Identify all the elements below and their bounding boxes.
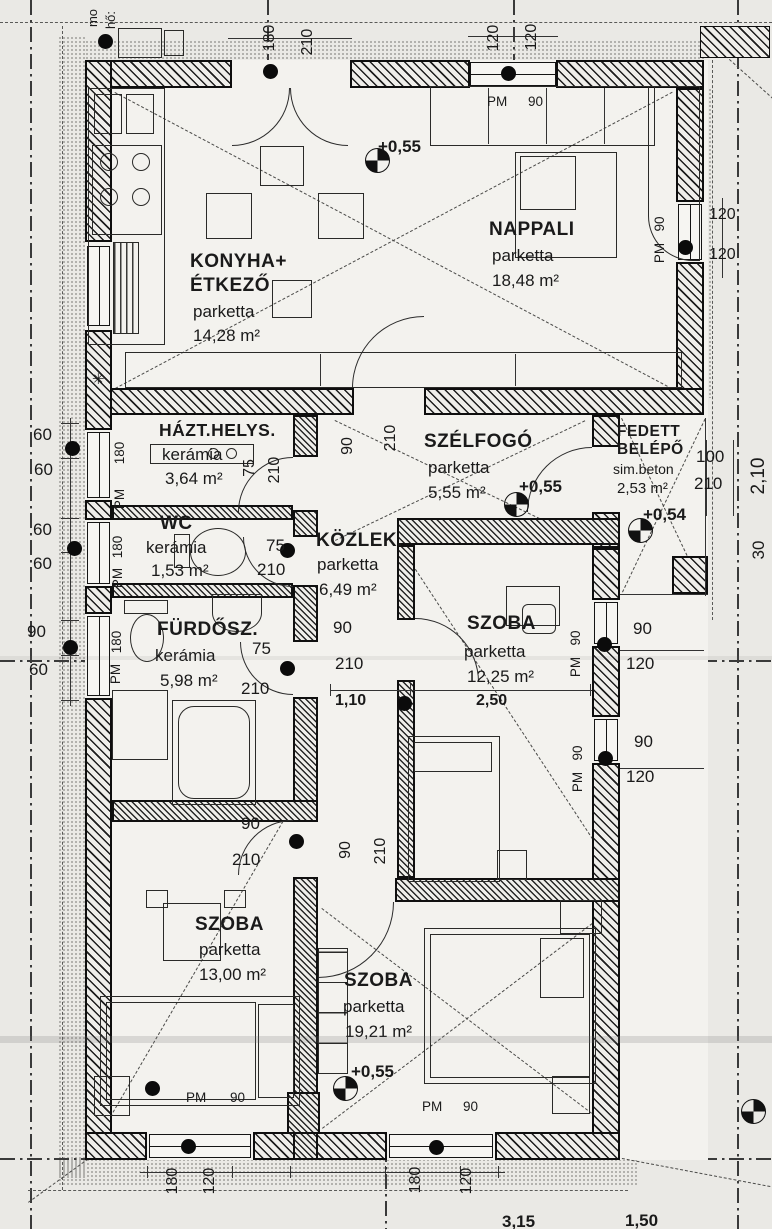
dimension-label: 120 bbox=[459, 1161, 475, 1201]
reference-dot bbox=[65, 441, 80, 456]
room-material: sim.beton bbox=[613, 462, 674, 477]
window-label: PM bbox=[569, 647, 585, 687]
kitchen-sink bbox=[94, 94, 122, 134]
partition-wall bbox=[112, 583, 293, 598]
garden-wall-block bbox=[700, 26, 770, 58]
room-material: parketta bbox=[343, 998, 404, 1016]
dimension-label: 60 bbox=[34, 461, 53, 479]
window-label: PM bbox=[571, 762, 587, 802]
dimension-label: 75 bbox=[266, 537, 285, 555]
exterior-wall bbox=[350, 60, 470, 88]
dimension-label: 1,50 bbox=[625, 1212, 658, 1229]
reference-dot bbox=[429, 1140, 444, 1155]
room-label-konyha: ÉTKEZŐ bbox=[190, 276, 270, 296]
dimension-label: 90 bbox=[241, 815, 260, 833]
equipment-label: hő: bbox=[104, 0, 120, 40]
chair bbox=[146, 890, 168, 908]
dimension-tick bbox=[330, 684, 331, 696]
room-area: 6,49 m² bbox=[319, 581, 377, 599]
exterior-wall bbox=[85, 1132, 147, 1160]
dimension-label: 3,15 bbox=[502, 1213, 535, 1229]
reference-dot bbox=[397, 696, 412, 711]
dimension-label: 90 bbox=[633, 620, 652, 638]
scan-crease bbox=[0, 1036, 772, 1043]
reference-dot bbox=[67, 541, 82, 556]
dimension-label: 2,10 bbox=[749, 454, 765, 498]
dimension-line bbox=[228, 38, 352, 39]
exterior-wall bbox=[253, 1132, 387, 1160]
scan-crease bbox=[0, 656, 772, 660]
room-material: parketta bbox=[199, 941, 260, 959]
window-label: 90 bbox=[230, 1091, 245, 1105]
level-marker: +0,55 bbox=[351, 1063, 394, 1081]
reference-dot bbox=[181, 1139, 196, 1154]
room-material: parketta bbox=[317, 556, 378, 574]
sofa-cushion-line bbox=[604, 88, 605, 144]
room-label-szoba-1: SZOBA bbox=[467, 614, 536, 634]
dimension-label: 90 bbox=[333, 619, 352, 637]
axis-line-left bbox=[30, 0, 32, 1229]
appliance-knob bbox=[226, 448, 237, 459]
room-material: parketta bbox=[492, 247, 553, 265]
dimension-tick bbox=[61, 620, 79, 621]
exterior-wall bbox=[495, 1132, 620, 1160]
axis-line-window-top bbox=[513, 0, 515, 62]
dimension-label: 90 bbox=[340, 426, 356, 466]
dimension-tick bbox=[61, 700, 79, 701]
level-marker: +0,55 bbox=[519, 478, 562, 496]
dimension-label: 120 bbox=[709, 207, 736, 224]
reference-dot bbox=[63, 640, 78, 655]
room-area: 3,64 m² bbox=[165, 470, 223, 488]
window bbox=[87, 432, 110, 498]
reference-dot bbox=[289, 834, 304, 849]
sideboard bbox=[125, 352, 682, 388]
porch-column bbox=[672, 556, 708, 594]
window-label: PM bbox=[109, 654, 125, 694]
reference-dot bbox=[280, 661, 295, 676]
exterior-wall bbox=[556, 60, 704, 88]
dimension-tick bbox=[290, 1166, 291, 1178]
pillow bbox=[414, 742, 492, 772]
floor-drain-symbol: ✳ bbox=[92, 372, 105, 388]
equipment-box bbox=[118, 28, 162, 58]
dimension-label: 210 bbox=[373, 831, 389, 871]
reference-dot bbox=[501, 66, 516, 81]
chair bbox=[560, 900, 602, 934]
window-label: PM bbox=[422, 1100, 442, 1114]
interior-load-wall bbox=[108, 388, 354, 415]
chair bbox=[224, 890, 246, 908]
room-area: 12,25 m² bbox=[467, 668, 534, 686]
pillow bbox=[258, 1004, 294, 1098]
room-label-fedett: FEDETT bbox=[617, 424, 680, 440]
room-label-fedett: BELÉPŐ bbox=[617, 442, 684, 458]
exterior-wall bbox=[592, 900, 620, 1160]
room-label-konyha: KONYHA+ bbox=[190, 252, 287, 272]
dimension-tick bbox=[232, 1166, 233, 1178]
room-material: parketta bbox=[428, 459, 489, 477]
dimension-line bbox=[468, 36, 558, 37]
dimension-tick bbox=[61, 458, 79, 459]
reference-dot bbox=[678, 240, 693, 255]
window-label: PM bbox=[113, 479, 129, 519]
room-label-szoba-2: SZOBA bbox=[195, 915, 264, 935]
dimension-label: 100 bbox=[696, 448, 724, 466]
dimension-label: 2,50 bbox=[476, 693, 507, 710]
room-label-kozlek: KÖZLEK. bbox=[316, 531, 403, 551]
room-label-nappali: NAPPALI bbox=[489, 220, 574, 240]
dimension-tick bbox=[147, 1166, 148, 1178]
room-material: kerámia bbox=[162, 446, 222, 464]
dimension-label: 180 bbox=[165, 1161, 181, 1201]
eave-line-left bbox=[62, 26, 63, 1190]
dimension-tick bbox=[590, 684, 591, 696]
dimension-label: 90 bbox=[338, 830, 354, 870]
survey-marker-symbol bbox=[741, 1099, 766, 1124]
room-label-hazt: HÁZT.HELYS. bbox=[159, 421, 276, 439]
porch-edge bbox=[620, 594, 708, 595]
dimension-tick bbox=[61, 518, 79, 519]
dimension-label: 210 bbox=[267, 450, 283, 490]
room-area: 13,00 m² bbox=[199, 966, 266, 984]
room-area: 14,28 m² bbox=[193, 327, 260, 345]
exterior-wall bbox=[592, 548, 620, 600]
window-label: 90 bbox=[463, 1100, 478, 1114]
level-marker: +0,54 bbox=[643, 506, 686, 524]
entry-wall bbox=[592, 415, 620, 447]
room-area: 5,55 m² bbox=[428, 484, 486, 502]
partition-wall bbox=[293, 510, 318, 537]
room-area: 5,98 m² bbox=[160, 672, 218, 690]
dining-chair bbox=[272, 280, 312, 318]
interior-load-wall bbox=[424, 388, 704, 415]
partition-wall bbox=[397, 518, 620, 545]
reference-dot bbox=[598, 751, 613, 766]
floor-plan-canvas: KONYHA+ ÉTKEZŐ parketta 14,28 m² NAPPALI… bbox=[0, 0, 772, 1229]
dimension-tick bbox=[61, 423, 79, 424]
reference-dot bbox=[263, 64, 278, 79]
dimension-tick bbox=[410, 684, 411, 696]
room-area: 18,48 m² bbox=[492, 272, 559, 290]
stove-burner bbox=[132, 188, 150, 206]
dimension-label: 210 bbox=[232, 851, 260, 869]
window-label: 180 bbox=[113, 433, 129, 473]
dimension-label: 1,10 bbox=[335, 693, 366, 710]
dimension-line bbox=[620, 650, 704, 651]
window-label: PM bbox=[653, 233, 669, 273]
equipment-box bbox=[164, 30, 184, 56]
dimension-label: 30 bbox=[750, 530, 766, 570]
level-marker: +0,55 bbox=[378, 138, 421, 156]
nightstand bbox=[552, 1076, 590, 1114]
stove-burner bbox=[100, 153, 118, 171]
eave-line-bottom bbox=[28, 1190, 628, 1191]
room-label-szelfogo: SZÉLFOGÓ bbox=[424, 432, 533, 452]
dimension-label: 60 bbox=[33, 521, 52, 539]
dimension-label: 60 bbox=[33, 555, 52, 573]
dining-table bbox=[318, 193, 364, 239]
window bbox=[87, 522, 110, 584]
room-area: 1,53 m² bbox=[151, 562, 209, 580]
dimension-label: 60 bbox=[29, 661, 48, 679]
dimension-label: 120 bbox=[524, 17, 540, 57]
dimension-label: 210 bbox=[300, 22, 316, 62]
dimension-label: 210 bbox=[383, 418, 399, 458]
sideboard-divider bbox=[515, 354, 516, 386]
dimension-label: 60 bbox=[33, 426, 52, 444]
bathtub-inner bbox=[178, 706, 250, 799]
dimension-line bbox=[140, 1172, 505, 1173]
dimension-tick bbox=[498, 1166, 499, 1178]
exterior-wall bbox=[85, 586, 112, 614]
nightstand bbox=[497, 850, 527, 880]
dimension-line bbox=[733, 440, 734, 516]
dimension-label: 90 bbox=[634, 733, 653, 751]
dimension-label: 120 bbox=[626, 768, 654, 786]
exterior-wall bbox=[85, 500, 112, 520]
window-label: PM bbox=[186, 1091, 206, 1105]
stove-burner bbox=[132, 153, 150, 171]
toilet-tank bbox=[124, 600, 168, 614]
window bbox=[149, 1134, 251, 1158]
dining-table bbox=[206, 193, 252, 239]
room-label-furdosz: FÜRDŐSZ. bbox=[157, 620, 258, 640]
dimension-label: 210 bbox=[241, 680, 269, 698]
room-material: parketta bbox=[193, 303, 254, 321]
washing-machine bbox=[112, 690, 168, 760]
dimension-line bbox=[330, 690, 592, 691]
room-area: 2,53 m² bbox=[617, 481, 668, 497]
dining-chair bbox=[260, 146, 304, 186]
reference-dot bbox=[145, 1081, 160, 1096]
stove-burner bbox=[100, 188, 118, 206]
room-label-wc: WC bbox=[160, 514, 193, 534]
dimension-label: 120 bbox=[202, 1161, 218, 1201]
window-label: PM bbox=[111, 558, 127, 598]
coffee-table-inner bbox=[520, 156, 576, 210]
reference-dot bbox=[597, 637, 612, 652]
dimension-label: 75 bbox=[242, 448, 258, 488]
dimension-label: 180 bbox=[262, 18, 278, 58]
dimension-tick bbox=[385, 1166, 386, 1178]
window-label: 90 bbox=[528, 95, 543, 109]
dimension-label: 90 bbox=[27, 623, 46, 641]
roof-mitre-bottom-right bbox=[622, 1158, 771, 1187]
radiator bbox=[113, 242, 139, 334]
sideboard-divider bbox=[320, 354, 321, 386]
dimension-label: 120 bbox=[709, 247, 736, 264]
pillow bbox=[540, 938, 584, 998]
partition-wall bbox=[397, 545, 415, 620]
kitchen-sink bbox=[126, 94, 154, 134]
sofa-cushion-line bbox=[546, 88, 547, 144]
dimension-label: 210 bbox=[257, 561, 285, 579]
dimension-line bbox=[70, 418, 71, 706]
dimension-label: 210 bbox=[694, 475, 722, 493]
room-label-szoba-3: SZOBA bbox=[344, 971, 413, 991]
partition-wall bbox=[293, 585, 318, 642]
dimension-label: 180 bbox=[408, 1160, 424, 1200]
dimension-label: 120 bbox=[486, 18, 502, 58]
room-material: kerámia bbox=[146, 539, 206, 557]
axis-line-right bbox=[737, 0, 739, 1229]
partition-wall bbox=[293, 415, 318, 457]
boiler-niche bbox=[94, 1076, 130, 1116]
window-label: PM bbox=[487, 95, 507, 109]
eave-line-right bbox=[712, 60, 713, 620]
equipment-label: mo bbox=[86, 0, 102, 38]
